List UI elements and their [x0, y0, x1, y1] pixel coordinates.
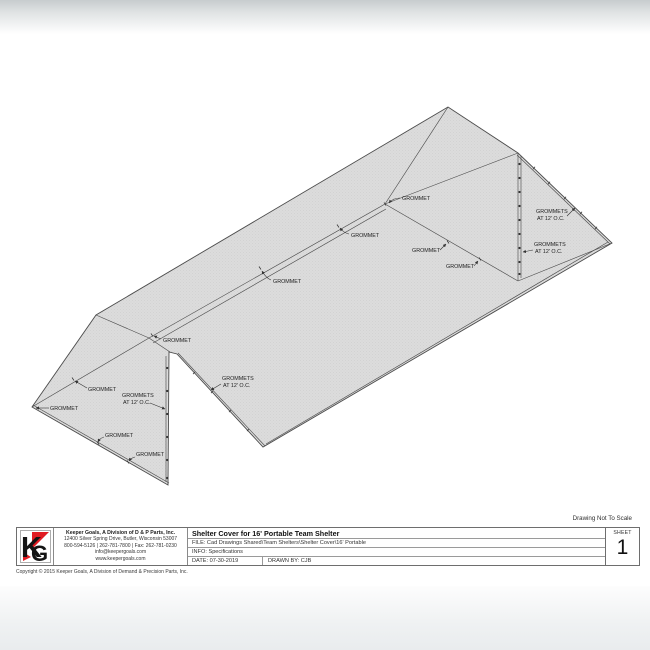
- copyright-line: Copyright © 2015 Keeper Goals, A Divisio…: [16, 569, 188, 575]
- grommet-dot: [166, 477, 168, 479]
- cad-sheet: { "header": { "scale_note": "Drawing Not…: [0, 0, 650, 650]
- grommet-callout-label: GROMMET: [351, 233, 380, 239]
- grommet-callout-label: GROMMET: [105, 433, 134, 439]
- drawing-file-path: FILE: Cad Drawings Shared\Team Shelters\…: [188, 539, 605, 548]
- grommet-dot: [518, 205, 520, 207]
- logo-letter-g: G: [31, 541, 48, 563]
- grommet-dot: [518, 191, 520, 193]
- company-website[interactable]: www.keepergoals.com: [54, 556, 187, 562]
- company-info: Keeper Goals, A Division of D & P Parts,…: [54, 528, 188, 565]
- keeper-goals-logo-icon: K G: [20, 530, 51, 563]
- sheet-number: 1: [617, 536, 629, 560]
- grommet-dot: [518, 261, 520, 263]
- grommet-dot: [518, 273, 520, 275]
- grommet-callout-label: GROMMET: [136, 452, 165, 458]
- grommets-oc-callout-label: AT 12' O.C.: [535, 249, 563, 255]
- drawing-info-row: INFO: Specifications: [188, 548, 605, 557]
- grommet-dot: [518, 219, 520, 221]
- grommet-callout-label: GROMMET: [446, 264, 475, 270]
- company-logo: K G: [17, 528, 54, 565]
- grommet-dot: [166, 367, 168, 369]
- grommets-oc-callout-label: GROMMETS: [534, 242, 566, 248]
- grommet-callout-label: GROMMET: [50, 406, 79, 412]
- grommet-dot: [518, 177, 520, 179]
- grommets-oc-callout-label: GROMMETS: [222, 376, 254, 382]
- title-block: K G Keeper Goals, A Division of D & P Pa…: [16, 527, 640, 566]
- grommet-callout-label: GROMMET: [273, 279, 302, 285]
- grommet-callout-label: GROMMET: [412, 248, 441, 254]
- scale-note: Drawing Not To Scale: [0, 515, 632, 522]
- grommet-dot: [166, 390, 168, 392]
- drawing-title: Shelter Cover for 16' Portable Team Shel…: [188, 528, 605, 539]
- grommets-oc-callout-label: GROMMETS: [122, 393, 154, 399]
- grommet-dot: [518, 233, 520, 235]
- grommets-oc-callout-label: GROMMETS: [536, 209, 568, 215]
- cover-panels: [32, 107, 612, 485]
- grommet-dot: [518, 163, 520, 165]
- cover-outline: [32, 107, 612, 485]
- grommet-dot: [518, 247, 520, 249]
- grommet-callout-label: GROMMET: [402, 196, 431, 202]
- grommets-oc-callout-label: AT 12' O.C.: [223, 383, 251, 389]
- grommet-dot: [166, 436, 168, 438]
- sheet-cell: SHEET 1: [605, 528, 639, 565]
- grommets-oc-callout-label: AT 12' O.C.: [123, 400, 151, 406]
- drawing-date-row: DATE: 07-30-2019 DRAWN BY: CJB: [188, 557, 605, 565]
- grommet-dot: [166, 413, 168, 415]
- drawing-date: DATE: 07-30-2019: [188, 557, 263, 565]
- grommets-oc-callout-label: AT 12' O.C.: [537, 216, 565, 222]
- grommet-dot: [166, 459, 168, 461]
- drawn-by: DRAWN BY: CJB: [263, 557, 605, 565]
- drawing-info: Shelter Cover for 16' Portable Team Shel…: [188, 528, 605, 565]
- grommet-callout-label: GROMMET: [88, 387, 117, 393]
- company-address: 12400 Silver Spring Drive, Butler, Wisco…: [54, 536, 187, 542]
- grommet-callout-label: GROMMET: [163, 338, 192, 344]
